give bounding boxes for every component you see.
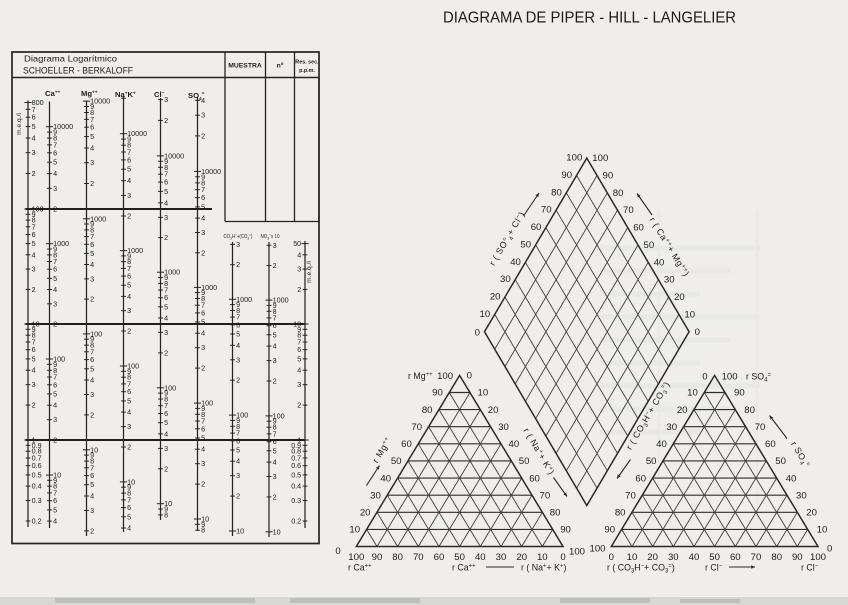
svg-text:70: 70 bbox=[413, 552, 424, 563]
svg-text:3: 3 bbox=[273, 472, 277, 481]
svg-text:0: 0 bbox=[695, 327, 700, 338]
svg-text:3: 3 bbox=[236, 240, 240, 249]
svg-text:2: 2 bbox=[53, 436, 57, 445]
svg-text:2: 2 bbox=[236, 260, 240, 269]
svg-text:5: 5 bbox=[32, 122, 36, 131]
svg-text:6: 6 bbox=[236, 320, 240, 329]
svg-text:2: 2 bbox=[273, 377, 277, 386]
svg-text:50: 50 bbox=[646, 456, 657, 467]
svg-text:3: 3 bbox=[127, 191, 131, 200]
svg-text:6: 6 bbox=[127, 155, 131, 164]
svg-text:20: 20 bbox=[488, 405, 499, 416]
svg-text:0: 0 bbox=[335, 546, 340, 557]
svg-text:60: 60 bbox=[730, 552, 741, 563]
svg-text:2: 2 bbox=[297, 285, 301, 294]
svg-text:6: 6 bbox=[127, 387, 131, 396]
svg-text:4: 4 bbox=[127, 408, 131, 417]
svg-text:2: 2 bbox=[32, 169, 36, 178]
svg-text:40: 40 bbox=[509, 439, 520, 450]
svg-text:0.4: 0.4 bbox=[291, 482, 301, 491]
svg-text:4: 4 bbox=[201, 445, 205, 454]
svg-text:60: 60 bbox=[635, 473, 646, 484]
svg-text:4: 4 bbox=[201, 329, 205, 338]
svg-text:70: 70 bbox=[625, 490, 636, 501]
svg-text:2: 2 bbox=[236, 376, 240, 385]
svg-text:100: 100 bbox=[348, 552, 364, 563]
svg-text:2: 2 bbox=[164, 348, 168, 357]
svg-text:50: 50 bbox=[293, 239, 301, 248]
svg-text:5: 5 bbox=[127, 512, 131, 521]
svg-text:SCHOELLER - BERKALOFF: SCHOELLER - BERKALOFF bbox=[23, 66, 133, 77]
svg-text:100: 100 bbox=[810, 552, 826, 563]
svg-text:4: 4 bbox=[127, 524, 131, 533]
svg-text:0.2: 0.2 bbox=[291, 517, 301, 526]
svg-text:6: 6 bbox=[53, 496, 57, 505]
svg-text:3: 3 bbox=[32, 265, 36, 274]
svg-text:60: 60 bbox=[529, 473, 540, 484]
svg-text:6: 6 bbox=[236, 436, 240, 445]
svg-text:50: 50 bbox=[519, 456, 530, 467]
svg-text:100: 100 bbox=[566, 153, 582, 164]
svg-text:6: 6 bbox=[201, 308, 205, 317]
svg-text:2: 2 bbox=[164, 116, 168, 125]
svg-text:6: 6 bbox=[90, 240, 94, 249]
svg-text:70: 70 bbox=[623, 205, 634, 216]
svg-text:6: 6 bbox=[53, 265, 57, 274]
svg-text:90: 90 bbox=[372, 552, 383, 563]
svg-text:40: 40 bbox=[656, 439, 667, 450]
svg-text:10: 10 bbox=[480, 309, 491, 320]
svg-text:0: 0 bbox=[827, 544, 832, 555]
svg-text:0.3: 0.3 bbox=[32, 496, 42, 505]
svg-text:90: 90 bbox=[734, 388, 745, 399]
svg-text:10: 10 bbox=[817, 525, 828, 536]
svg-text:4: 4 bbox=[90, 260, 94, 269]
svg-text:5: 5 bbox=[201, 202, 205, 211]
svg-text:5: 5 bbox=[90, 249, 94, 258]
svg-text:6: 6 bbox=[164, 409, 168, 418]
svg-text:80: 80 bbox=[615, 508, 626, 519]
svg-text:6: 6 bbox=[127, 272, 131, 281]
svg-text:6: 6 bbox=[53, 380, 57, 389]
svg-text:3: 3 bbox=[201, 459, 205, 468]
svg-text:5: 5 bbox=[127, 281, 131, 290]
svg-text:3: 3 bbox=[297, 265, 301, 274]
svg-text:0: 0 bbox=[475, 327, 480, 338]
svg-text:80: 80 bbox=[392, 552, 403, 563]
svg-text:0.2: 0.2 bbox=[32, 517, 42, 526]
svg-text:0.3: 0.3 bbox=[291, 496, 301, 505]
svg-text:2: 2 bbox=[236, 492, 240, 501]
svg-text:m.e.q./l: m.e.q./l bbox=[306, 261, 313, 283]
svg-text:70: 70 bbox=[751, 552, 762, 563]
svg-text:90: 90 bbox=[561, 170, 572, 181]
svg-text:2: 2 bbox=[127, 327, 131, 336]
svg-text:0: 0 bbox=[467, 371, 472, 382]
svg-text:70: 70 bbox=[541, 205, 552, 216]
svg-text:5: 5 bbox=[127, 165, 131, 174]
svg-text:50: 50 bbox=[644, 240, 655, 251]
svg-text:6: 6 bbox=[164, 293, 168, 302]
svg-text:40: 40 bbox=[689, 552, 700, 563]
svg-text:80: 80 bbox=[550, 508, 561, 519]
svg-text:40: 40 bbox=[510, 257, 521, 268]
svg-text:0: 0 bbox=[609, 552, 614, 563]
svg-text:5: 5 bbox=[236, 330, 240, 339]
svg-text:70: 70 bbox=[411, 422, 422, 433]
svg-text:5: 5 bbox=[53, 505, 57, 514]
svg-text:80: 80 bbox=[551, 187, 562, 198]
svg-text:4: 4 bbox=[164, 198, 168, 207]
svg-text:10: 10 bbox=[687, 388, 698, 399]
svg-text:50: 50 bbox=[391, 456, 402, 467]
svg-text:3: 3 bbox=[236, 471, 240, 480]
svg-text:4: 4 bbox=[90, 376, 94, 385]
svg-text:6: 6 bbox=[273, 437, 277, 446]
svg-text:5: 5 bbox=[236, 446, 240, 455]
svg-text:4: 4 bbox=[201, 214, 205, 223]
svg-text:4: 4 bbox=[164, 429, 168, 438]
svg-text:4: 4 bbox=[127, 176, 131, 185]
svg-text:6: 6 bbox=[127, 503, 131, 512]
svg-text:4: 4 bbox=[201, 96, 205, 105]
svg-text:2: 2 bbox=[90, 179, 94, 188]
svg-text:10: 10 bbox=[273, 527, 281, 536]
svg-text:5: 5 bbox=[32, 354, 36, 363]
svg-text:90: 90 bbox=[560, 525, 571, 536]
svg-text:5: 5 bbox=[32, 239, 36, 248]
svg-text:5: 5 bbox=[164, 187, 168, 196]
svg-text:8: 8 bbox=[201, 526, 205, 535]
svg-text:2: 2 bbox=[127, 212, 131, 221]
svg-text:3: 3 bbox=[201, 228, 205, 237]
svg-text:20: 20 bbox=[677, 405, 688, 416]
svg-text:4: 4 bbox=[32, 366, 36, 375]
svg-text:3: 3 bbox=[201, 111, 205, 120]
svg-text:3: 3 bbox=[53, 415, 57, 424]
svg-text:6: 6 bbox=[53, 148, 57, 157]
svg-text:4: 4 bbox=[32, 134, 36, 143]
svg-text:3: 3 bbox=[164, 328, 168, 337]
svg-text:6: 6 bbox=[32, 113, 36, 122]
svg-text:2: 2 bbox=[127, 443, 131, 452]
svg-text:6: 6 bbox=[164, 178, 168, 187]
svg-text:6: 6 bbox=[201, 424, 205, 433]
svg-text:70: 70 bbox=[540, 490, 551, 501]
svg-text:6: 6 bbox=[32, 345, 36, 354]
svg-text:3: 3 bbox=[90, 158, 94, 167]
svg-text:100: 100 bbox=[569, 547, 585, 558]
svg-text:60: 60 bbox=[401, 439, 412, 450]
svg-text:3: 3 bbox=[201, 343, 205, 352]
svg-text:4: 4 bbox=[297, 366, 301, 375]
svg-text:10: 10 bbox=[684, 309, 695, 320]
svg-text:2: 2 bbox=[201, 131, 205, 140]
svg-text:60: 60 bbox=[765, 439, 776, 450]
svg-text:2: 2 bbox=[32, 285, 36, 294]
svg-text:3: 3 bbox=[32, 380, 36, 389]
svg-text:6: 6 bbox=[201, 193, 205, 202]
svg-text:0.6: 0.6 bbox=[32, 461, 42, 470]
svg-text:30: 30 bbox=[496, 552, 507, 563]
svg-text:3: 3 bbox=[164, 444, 168, 453]
svg-text:4: 4 bbox=[53, 285, 57, 294]
svg-text:2: 2 bbox=[164, 464, 168, 473]
svg-text:80: 80 bbox=[422, 405, 433, 416]
svg-text:5: 5 bbox=[164, 418, 168, 427]
svg-text:4: 4 bbox=[236, 457, 240, 466]
svg-text:m.e.q./l: m.e.q./l bbox=[16, 113, 23, 135]
svg-text:2: 2 bbox=[201, 480, 205, 489]
svg-text:40: 40 bbox=[475, 552, 486, 563]
svg-text:6: 6 bbox=[90, 355, 94, 364]
svg-text:100: 100 bbox=[589, 544, 605, 555]
svg-text:3: 3 bbox=[53, 299, 57, 308]
svg-text:5: 5 bbox=[297, 354, 301, 363]
svg-text:6: 6 bbox=[90, 123, 94, 132]
svg-text:90: 90 bbox=[604, 525, 615, 536]
svg-text:0: 0 bbox=[560, 552, 565, 563]
svg-text:40: 40 bbox=[380, 473, 391, 484]
svg-text:6: 6 bbox=[32, 230, 36, 239]
svg-text:3: 3 bbox=[273, 356, 277, 365]
svg-text:3: 3 bbox=[164, 213, 168, 222]
svg-text:100: 100 bbox=[437, 371, 453, 382]
svg-text:3: 3 bbox=[273, 241, 277, 250]
svg-text:2: 2 bbox=[53, 320, 57, 329]
svg-text:2: 2 bbox=[273, 261, 277, 270]
svg-text:2: 2 bbox=[90, 410, 94, 419]
svg-text:4: 4 bbox=[127, 292, 131, 301]
svg-text:60: 60 bbox=[434, 552, 445, 563]
svg-text:5: 5 bbox=[273, 330, 277, 339]
svg-text:30: 30 bbox=[498, 422, 509, 433]
svg-text:20: 20 bbox=[490, 292, 501, 303]
svg-text:0.6: 0.6 bbox=[291, 461, 301, 470]
svg-text:2: 2 bbox=[201, 248, 205, 257]
svg-text:80: 80 bbox=[744, 405, 755, 416]
svg-text:0.5: 0.5 bbox=[32, 470, 42, 479]
svg-text:2: 2 bbox=[53, 205, 57, 214]
svg-text:20: 20 bbox=[516, 552, 527, 563]
svg-text:p.p.m.: p.p.m. bbox=[299, 68, 315, 74]
svg-text:3: 3 bbox=[32, 148, 36, 157]
svg-text:0.5: 0.5 bbox=[291, 470, 301, 479]
svg-text:3: 3 bbox=[90, 506, 94, 515]
svg-text:0: 0 bbox=[702, 372, 707, 383]
svg-text:5: 5 bbox=[90, 132, 94, 141]
svg-text:50: 50 bbox=[775, 456, 786, 467]
svg-text:50: 50 bbox=[709, 552, 720, 563]
svg-text:10: 10 bbox=[236, 527, 244, 536]
svg-text:5: 5 bbox=[127, 396, 131, 405]
svg-text:30: 30 bbox=[666, 422, 677, 433]
svg-text:2: 2 bbox=[90, 526, 94, 535]
svg-text:100: 100 bbox=[592, 153, 608, 164]
svg-text:2: 2 bbox=[90, 295, 94, 304]
svg-text:50: 50 bbox=[454, 552, 465, 563]
svg-text:4: 4 bbox=[273, 342, 277, 351]
svg-text:10: 10 bbox=[478, 388, 489, 399]
svg-text:5: 5 bbox=[53, 389, 57, 398]
svg-text:4: 4 bbox=[53, 517, 57, 526]
svg-text:5: 5 bbox=[53, 158, 57, 167]
svg-text:80: 80 bbox=[613, 188, 624, 199]
svg-text:10: 10 bbox=[537, 552, 548, 563]
svg-text:DIAGRAMA DE PIPER - HILL - L: DIAGRAMA DE PIPER - HILL - LANGELIER bbox=[443, 10, 736, 27]
svg-text:6: 6 bbox=[297, 345, 301, 354]
svg-text:5: 5 bbox=[90, 364, 94, 373]
svg-text:0.4: 0.4 bbox=[32, 482, 42, 491]
svg-text:4: 4 bbox=[236, 341, 240, 350]
svg-text:50: 50 bbox=[520, 239, 531, 250]
svg-text:4: 4 bbox=[273, 458, 277, 467]
svg-text:3: 3 bbox=[236, 355, 240, 364]
svg-text:60: 60 bbox=[531, 222, 542, 233]
svg-text:20: 20 bbox=[360, 508, 371, 519]
svg-text:30: 30 bbox=[664, 275, 675, 286]
svg-text:70: 70 bbox=[755, 422, 766, 433]
svg-text:100: 100 bbox=[722, 372, 738, 383]
svg-text:40: 40 bbox=[786, 473, 797, 484]
svg-text:4: 4 bbox=[32, 250, 36, 259]
svg-text:4: 4 bbox=[164, 314, 168, 323]
svg-text:90: 90 bbox=[432, 388, 443, 399]
svg-text:5: 5 bbox=[53, 274, 57, 283]
svg-text:Diagrama Logarítmico: Diagrama Logarítmico bbox=[24, 54, 117, 64]
svg-text:nº: nº bbox=[277, 63, 284, 70]
svg-text:8: 8 bbox=[164, 510, 168, 519]
svg-text:4: 4 bbox=[297, 250, 301, 259]
svg-text:2: 2 bbox=[273, 492, 277, 501]
svg-text:10: 10 bbox=[627, 552, 638, 563]
svg-text:4: 4 bbox=[90, 492, 94, 501]
svg-text:4: 4 bbox=[53, 401, 57, 410]
svg-text:MUESTRA: MUESTRA bbox=[228, 63, 262, 70]
svg-text:30: 30 bbox=[370, 490, 381, 501]
svg-text:90: 90 bbox=[792, 552, 803, 563]
svg-text:3: 3 bbox=[127, 306, 131, 315]
svg-text:60: 60 bbox=[633, 223, 644, 234]
svg-text:90: 90 bbox=[603, 171, 614, 182]
svg-text:3: 3 bbox=[90, 274, 94, 283]
svg-text:3: 3 bbox=[297, 380, 301, 389]
svg-text:5: 5 bbox=[90, 480, 94, 489]
svg-text:30: 30 bbox=[668, 552, 679, 563]
svg-text:20: 20 bbox=[806, 508, 817, 519]
svg-text:4: 4 bbox=[53, 169, 57, 178]
svg-text:3: 3 bbox=[164, 95, 168, 104]
svg-text:4: 4 bbox=[90, 144, 94, 153]
svg-text:30: 30 bbox=[500, 274, 511, 285]
svg-text:2: 2 bbox=[201, 364, 205, 373]
svg-text:30: 30 bbox=[796, 490, 807, 501]
svg-text:Res. sec.: Res. sec. bbox=[295, 60, 319, 66]
svg-text:6: 6 bbox=[273, 321, 277, 330]
svg-text:2: 2 bbox=[32, 401, 36, 410]
svg-text:10: 10 bbox=[349, 525, 360, 536]
svg-text:3: 3 bbox=[53, 184, 57, 193]
svg-text:20: 20 bbox=[674, 292, 685, 303]
svg-text:5: 5 bbox=[201, 434, 205, 443]
svg-text:5: 5 bbox=[201, 318, 205, 327]
svg-text:5: 5 bbox=[273, 446, 277, 455]
svg-text:40: 40 bbox=[654, 257, 665, 268]
svg-text:3: 3 bbox=[127, 422, 131, 431]
svg-text:3: 3 bbox=[90, 390, 94, 399]
svg-text:6: 6 bbox=[90, 471, 94, 480]
svg-text:80: 80 bbox=[771, 552, 782, 563]
svg-text:20: 20 bbox=[647, 552, 658, 563]
svg-text:2: 2 bbox=[297, 401, 301, 410]
svg-text:2: 2 bbox=[164, 233, 168, 242]
svg-text:5: 5 bbox=[164, 302, 168, 311]
